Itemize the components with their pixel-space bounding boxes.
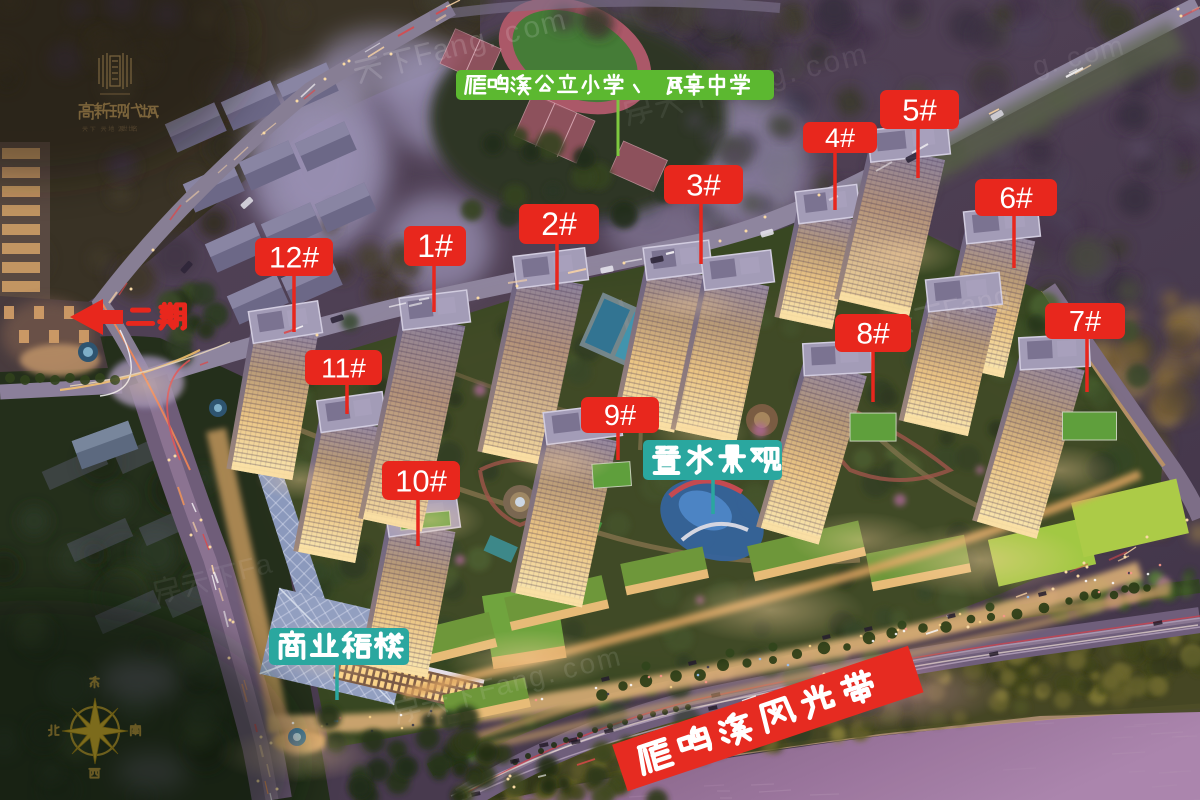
svg-text:9#: 9# [604, 400, 636, 432]
svg-text:5#: 5# [902, 92, 937, 127]
svg-text:2#: 2# [541, 206, 577, 242]
svg-text:6#: 6# [999, 182, 1033, 215]
svg-text:11#: 11# [321, 352, 366, 383]
svg-text:4#: 4# [825, 123, 855, 153]
svg-text:3#: 3# [686, 167, 721, 202]
svg-text:12#: 12# [269, 242, 319, 275]
svg-text:7#: 7# [1069, 306, 1101, 338]
svg-text:10#: 10# [395, 463, 447, 498]
svg-text:8#: 8# [856, 318, 890, 351]
svg-text:1#: 1# [417, 228, 453, 264]
